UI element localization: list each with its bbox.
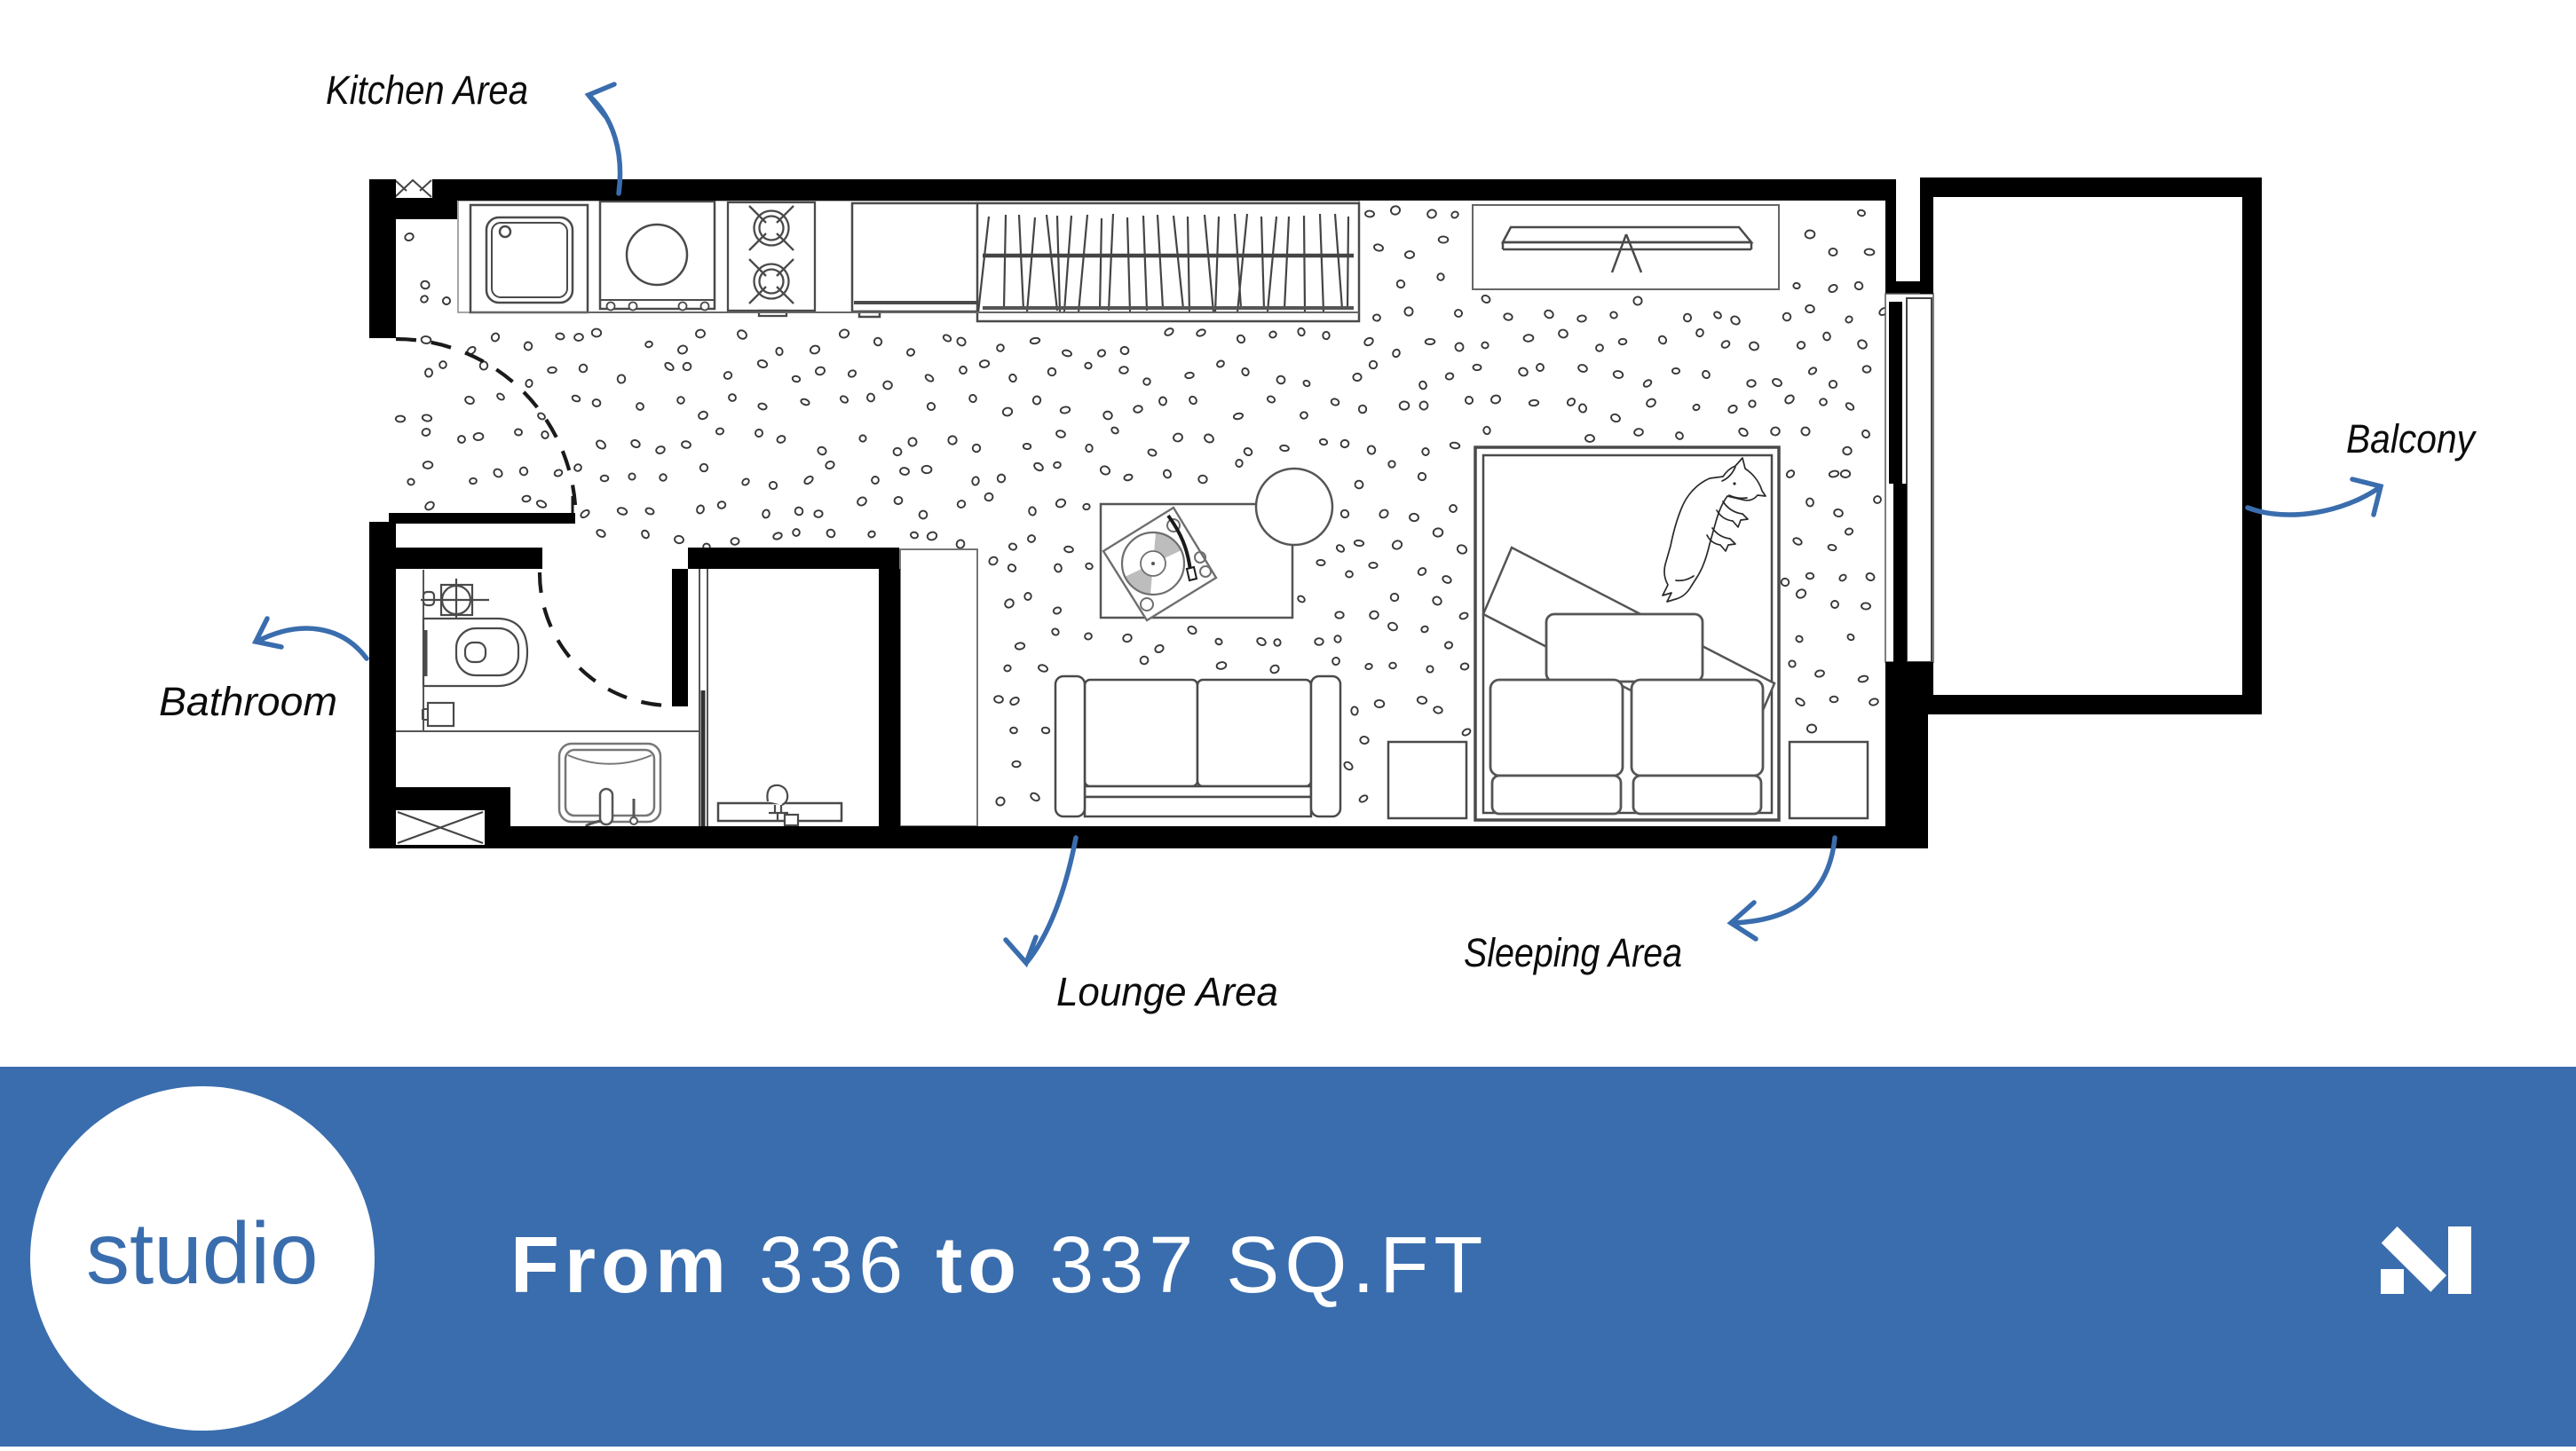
svg-text:From 336 to 337 SQ.FT: From 336 to 337 SQ.FT xyxy=(510,1221,1488,1310)
svg-text:Sleeping Area: Sleeping Area xyxy=(1464,930,1682,975)
svg-text:Bathroom: Bathroom xyxy=(159,679,337,724)
svg-text:Lounge Area: Lounge Area xyxy=(1056,969,1278,1014)
svg-text:Kitchen Area: Kitchen Area xyxy=(326,67,528,113)
svg-text:studio: studio xyxy=(86,1204,319,1302)
svg-text:Balcony: Balcony xyxy=(2346,416,2477,461)
